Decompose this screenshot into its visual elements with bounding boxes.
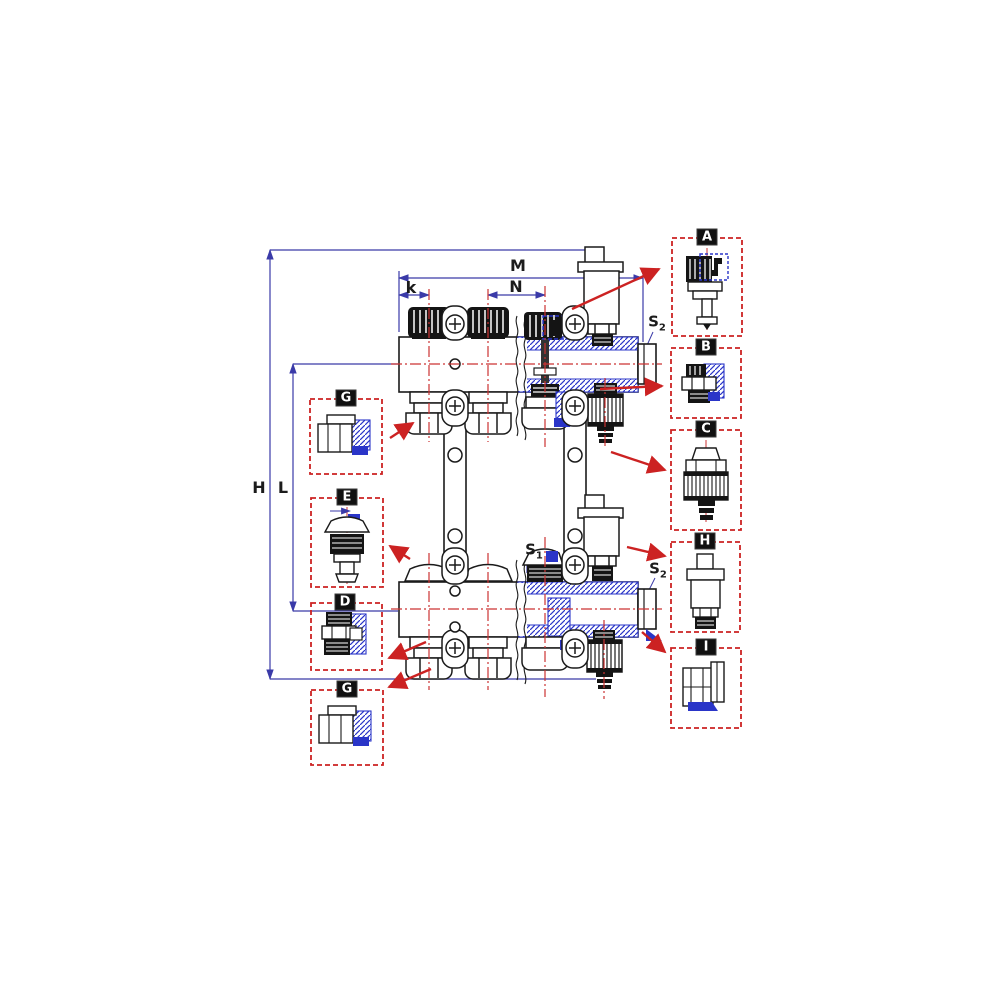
detail-D-adapter (322, 612, 366, 655)
dimension-S2-bottom-label: S2 (649, 562, 667, 581)
break-lines (514, 316, 527, 684)
s2-bottom-base: S (649, 560, 660, 578)
s2-bottom-sub: 2 (660, 570, 667, 581)
dimension-H-label: H (252, 480, 265, 496)
strap-hole (568, 448, 582, 462)
dimension-M-label: M (510, 258, 526, 274)
bracket-straps (444, 418, 586, 558)
callout-badge-A: A (697, 229, 718, 246)
callout-badge-H: H (695, 533, 716, 550)
bottom-manifold (399, 582, 662, 641)
strap-hole (568, 529, 582, 543)
callout-badge-B: B (696, 339, 717, 356)
strap-hole (448, 529, 462, 543)
detail-B-fitting (682, 364, 724, 403)
s1-sub: 1 (536, 551, 543, 562)
arrow-to-E (390, 546, 410, 559)
detail-I-end-plug (683, 662, 724, 711)
end-plug-section-wedge (646, 629, 662, 641)
detail-C-drain-valve (684, 440, 728, 524)
s2-top-sub: 2 (659, 323, 666, 334)
callout-badge-G2: G (337, 681, 358, 698)
strap-hole-small (450, 622, 460, 632)
dimension-L-label: L (278, 480, 288, 496)
sectioned-seat-hatch (548, 598, 570, 636)
callout-badge-C: C (696, 421, 717, 438)
strap-hole-small (450, 586, 460, 596)
drawing-canvas (0, 0, 1000, 1000)
dimension-S1-label: S1 (525, 543, 543, 562)
detail-A-valve-insert (686, 248, 728, 332)
dimension-k-label: k (406, 280, 417, 296)
callout-badge-D: D (335, 594, 356, 611)
detail-E-valve-insert (325, 507, 369, 584)
detail-G1-compression-fitting (318, 415, 370, 455)
callout-badge-I: I (696, 639, 717, 656)
dimension-S2-top-label: S2 (648, 315, 666, 334)
dimension-N-label: N (509, 279, 522, 295)
s2-top-base: S (648, 313, 659, 331)
manifold-assembly-drawing: M k N H L S1 S2 S2 A B C H I G E D G (0, 0, 1000, 1000)
callout-badge-G1: G (336, 390, 357, 407)
callout-badge-E: E (337, 489, 358, 506)
s1-base: S (525, 541, 536, 559)
arrow-to-C (611, 452, 665, 470)
detail-H-air-vent (687, 554, 724, 629)
strap-hole (448, 448, 462, 462)
detail-G2-compression-fitting (319, 706, 371, 746)
arrow-to-H (627, 547, 665, 556)
